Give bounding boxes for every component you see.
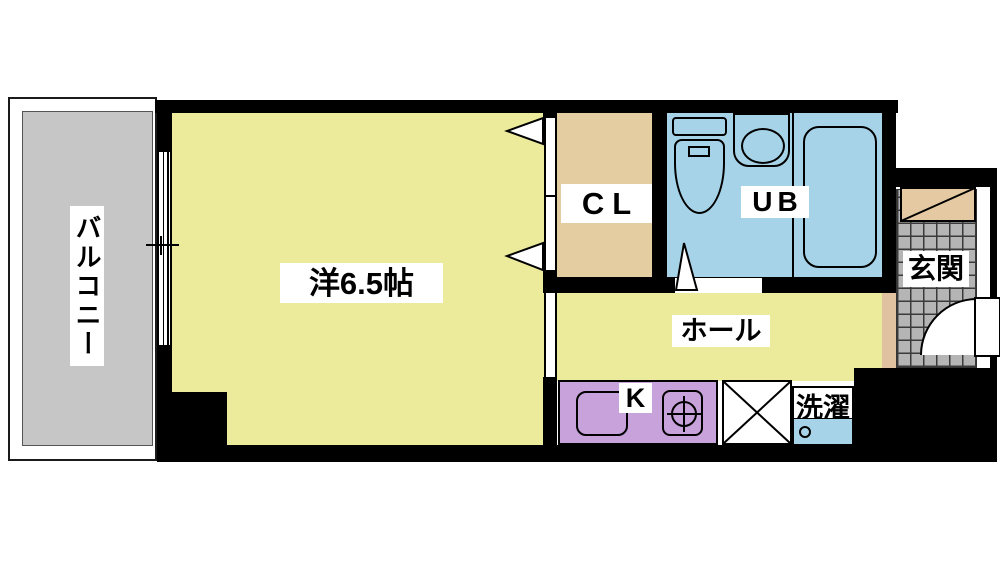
wall-room-right-c [543, 377, 557, 447]
western-room-label: 洋6.5帖 [280, 263, 443, 303]
washing-machine-dot-icon [799, 426, 811, 438]
toilet-tank-icon [672, 117, 727, 136]
unit-bath-label: UB [741, 186, 809, 218]
closet-label: CL [561, 184, 652, 223]
wall-left-lower [157, 345, 172, 395]
window-pane-line [167, 152, 169, 345]
balcony-label: バルコニー [70, 206, 104, 366]
toilet-seat-hinge-icon [688, 146, 710, 157]
entrance-step [882, 293, 896, 370]
entrance-door-leaf-icon [974, 297, 1000, 357]
wall-top [155, 100, 898, 113]
washing-machine-tub [794, 418, 852, 444]
wall-closet-right [652, 113, 667, 293]
window-pane-line [163, 152, 165, 345]
wall-main-right [882, 100, 896, 293]
hall-doorway-icon [544, 293, 557, 377]
wall-left-upper [157, 100, 172, 152]
hall-label: ホール [672, 315, 770, 347]
window-sash-mark [146, 244, 179, 246]
stove-burner-cross [667, 413, 701, 415]
wall-bottom [225, 445, 854, 462]
closet-door-divider [546, 195, 555, 197]
refrigerator-space-icon [722, 380, 792, 445]
washbasin-icon [741, 128, 785, 164]
entrance-label: 玄関 [903, 251, 969, 287]
kitchen-label: K [619, 383, 652, 413]
wall-bottom-right [854, 368, 997, 462]
floor-plan: 洗濯 バルコニー 洋6.5帖 CL UB ホール 玄関 K [0, 0, 1000, 562]
shoe-cabinet-icon [900, 187, 976, 222]
bathtub-icon [803, 126, 877, 268]
washing-machine-icon: 洗濯 [792, 386, 854, 446]
wall-step-block [157, 392, 227, 462]
closet-folding-door-icon [544, 118, 557, 270]
window-sash-mark [160, 236, 162, 255]
wall-entrance-top [896, 168, 997, 187]
bath-doorway [675, 278, 762, 293]
